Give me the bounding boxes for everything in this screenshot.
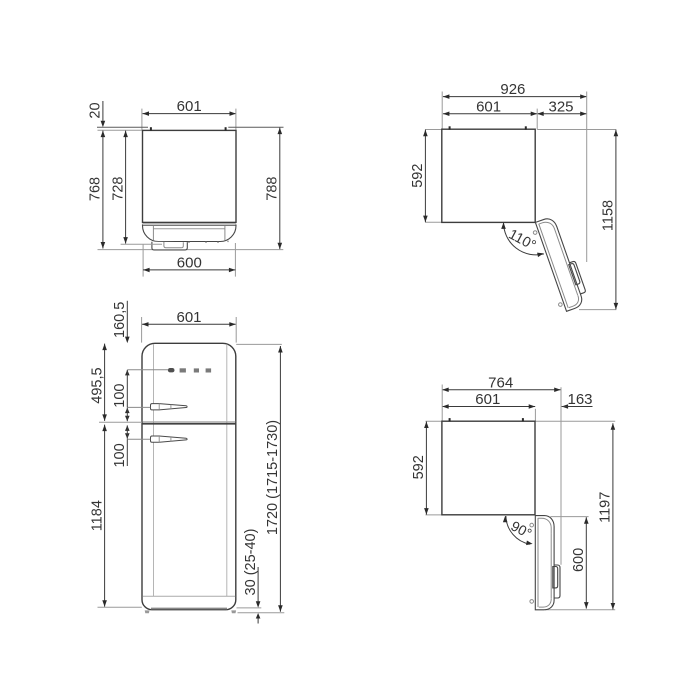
- svg-text:1158: 1158: [601, 200, 617, 231]
- svg-text:768: 768: [88, 177, 104, 201]
- svg-text:728: 728: [110, 176, 126, 200]
- svg-text:20: 20: [88, 102, 104, 118]
- svg-text:100: 100: [112, 383, 128, 407]
- svg-text:601: 601: [177, 98, 202, 115]
- svg-text:926: 926: [500, 81, 525, 98]
- svg-text:592: 592: [411, 455, 427, 479]
- svg-text:110°: 110°: [506, 227, 539, 255]
- svg-text:601: 601: [176, 309, 201, 326]
- svg-text:601: 601: [475, 391, 500, 408]
- svg-text:788: 788: [265, 176, 281, 200]
- svg-text:600: 600: [177, 254, 202, 271]
- svg-text:1720 (1715-1730): 1720 (1715-1730): [265, 420, 281, 535]
- svg-text:592: 592: [410, 164, 426, 188]
- svg-text:90°: 90°: [508, 518, 534, 542]
- svg-text:601: 601: [476, 98, 501, 115]
- svg-text:495,5: 495,5: [89, 367, 105, 403]
- svg-text:764: 764: [488, 374, 513, 391]
- svg-text:1197: 1197: [598, 492, 614, 523]
- svg-text:160,5: 160,5: [112, 302, 128, 338]
- svg-text:600: 600: [571, 548, 587, 572]
- svg-text:1184: 1184: [89, 500, 105, 531]
- svg-text:100: 100: [112, 443, 128, 467]
- svg-text:30 (25-40): 30 (25-40): [243, 529, 259, 596]
- svg-text:163: 163: [567, 391, 592, 408]
- svg-text:325: 325: [548, 98, 573, 115]
